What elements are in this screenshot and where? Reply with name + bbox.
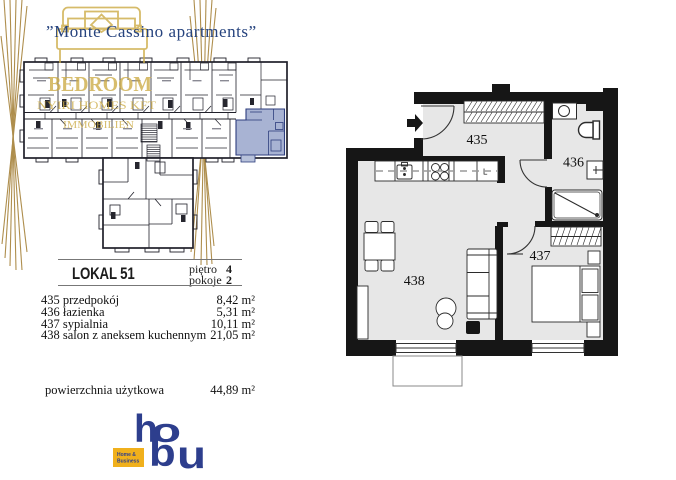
svg-text:438: 438	[404, 274, 425, 289]
svg-text:Home &: Home &	[117, 452, 136, 458]
svg-text:BEDROOM: BEDROOM	[48, 72, 152, 96]
svg-text:435: 435	[467, 133, 488, 148]
svg-text:L: L	[483, 168, 488, 177]
svg-text:Business: Business	[117, 459, 139, 465]
svg-text:NYIRI HOMES KFT: NYIRI HOMES KFT	[37, 98, 157, 112]
svg-text:437: 437	[530, 249, 551, 264]
svg-text:436: 436	[563, 155, 584, 170]
svg-text:IMMOBILIEN: IMMOBILIEN	[63, 119, 134, 131]
